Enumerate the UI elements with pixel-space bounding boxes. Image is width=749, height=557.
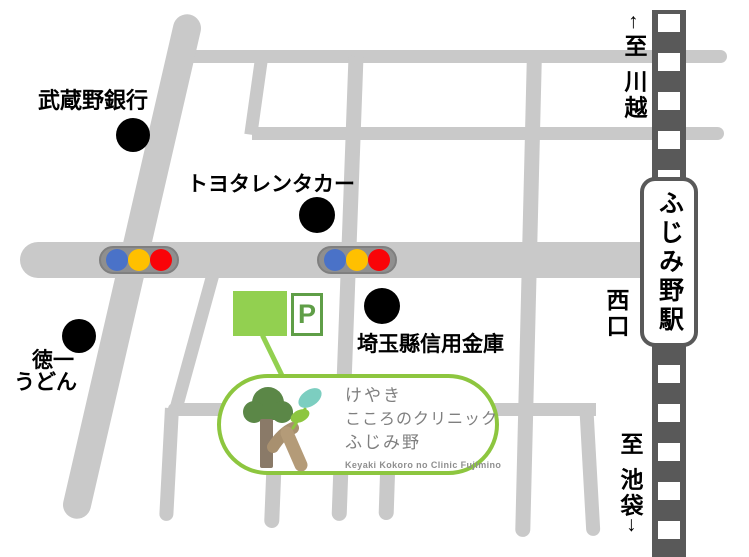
arrow-down-icon: ↓ — [626, 513, 637, 537]
direction-north-label: 至 川越 — [622, 34, 645, 121]
saitama-shinkin-marker — [364, 288, 400, 324]
road-connector-diagonal — [244, 52, 268, 135]
tokuichi-udon-marker — [62, 319, 96, 353]
station-name: ふじみ野駅 — [657, 190, 682, 335]
tokuichi-udon-label: 徳一 うどん — [14, 350, 77, 394]
clinic-name-block: けやき こころのクリニック ふじみ野 Keyaki Kokoro no Clin… — [345, 384, 501, 470]
signal-lamp-yellow-icon — [346, 249, 368, 271]
road-branch-right — [579, 410, 600, 537]
saitama-shinkin-label: 埼玉縣信用金庫 — [357, 328, 504, 358]
clinic-name-english: Keyaki Kokoro no Clinic Fujimino — [345, 460, 501, 470]
clinic-building-square — [233, 291, 287, 336]
signal-lamp-red-icon — [150, 249, 172, 271]
clinic-name-line2: こころのクリニック — [345, 408, 501, 431]
traffic-signal-1 — [99, 246, 179, 274]
arrow-up-icon: ↑ — [628, 10, 639, 34]
parking-icon: P — [298, 301, 316, 328]
road-stub-left — [159, 408, 179, 522]
clinic-tree-logo-icon — [238, 383, 326, 471]
signal-lamp-blue-icon — [324, 249, 346, 271]
direction-south-label: 至 池袋 — [618, 432, 641, 519]
toyota-rentacar-marker — [299, 197, 335, 233]
signal-lamp-red-icon — [368, 249, 390, 271]
parking-sign: P — [291, 293, 323, 336]
access-map: ↑ 至 川越 至 池袋 ↓ ふじみ野駅 西口 武蔵野銀行 トヨタレンタカー 埼玉… — [0, 0, 749, 557]
signal-lamp-blue-icon — [106, 249, 128, 271]
road-clinic-diagonal — [169, 271, 220, 412]
tokuichi-udon-line2: うどん — [14, 371, 77, 394]
leader-line — [260, 334, 285, 378]
tokuichi-udon-line1: 徳一 — [14, 350, 77, 372]
clinic-name-line1: けやき — [345, 384, 501, 408]
west-exit-label: 西口 — [604, 288, 627, 340]
station-box: ふじみ野駅 — [640, 177, 698, 347]
clinic-name-line3: ふじみ野 — [345, 431, 501, 455]
musashino-bank-label: 武蔵野銀行 — [38, 83, 148, 115]
musashino-bank-marker — [116, 118, 150, 152]
traffic-signal-2 — [317, 246, 397, 274]
toyota-rentacar-label: トヨタレンタカー — [187, 168, 355, 198]
signal-lamp-yellow-icon — [128, 249, 150, 271]
